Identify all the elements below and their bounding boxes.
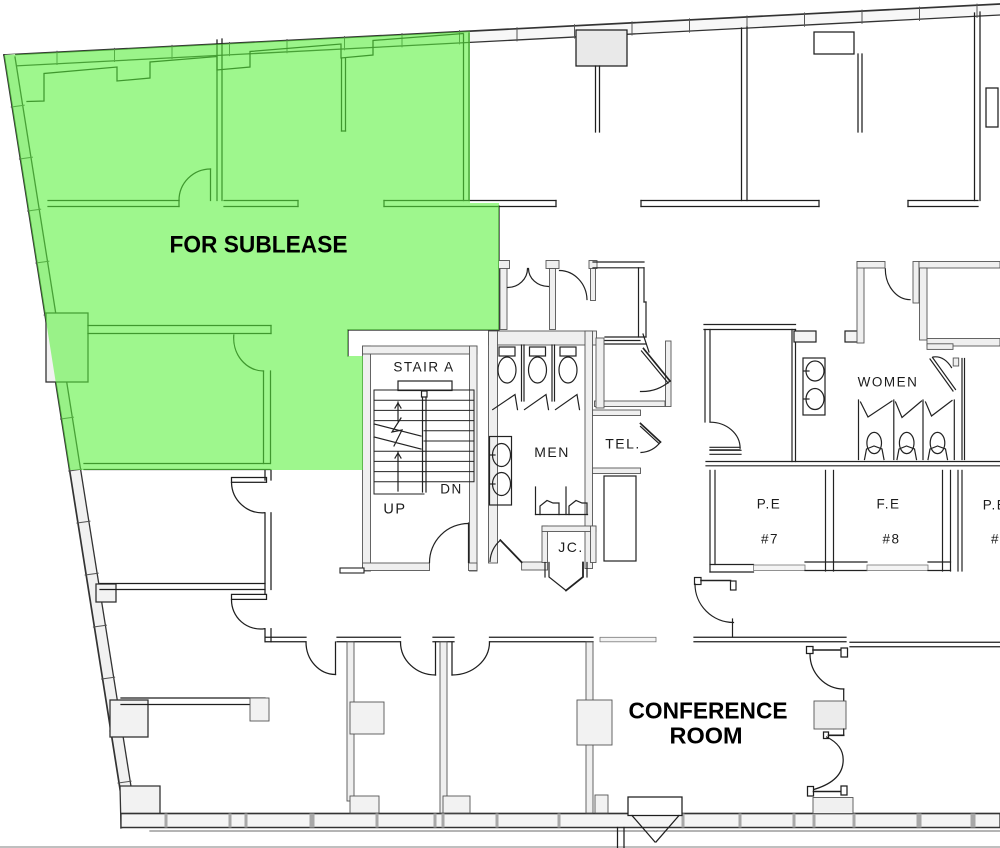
- svg-text:#7: #7: [761, 532, 779, 547]
- svg-text:F.E: F.E: [876, 497, 900, 512]
- svg-text:JC.: JC.: [558, 539, 584, 555]
- svg-text:#9: #9: [991, 532, 1000, 547]
- svg-text:FOR SUBLEASE: FOR SUBLEASE: [170, 232, 348, 259]
- svg-text:MEN: MEN: [534, 444, 570, 460]
- svg-text:STAIR A: STAIR A: [393, 360, 454, 375]
- svg-text:ROOM: ROOM: [670, 723, 743, 749]
- svg-text:P.E: P.E: [757, 497, 782, 512]
- svg-text:UP: UP: [383, 502, 406, 518]
- svg-text:P.E: P.E: [983, 498, 1000, 513]
- svg-text:#8: #8: [882, 532, 900, 547]
- svg-text:DN: DN: [440, 482, 463, 497]
- svg-text:WOMEN: WOMEN: [858, 375, 919, 390]
- svg-text:CONFERENCE: CONFERENCE: [629, 698, 788, 724]
- svg-text:TEL.: TEL.: [605, 436, 641, 452]
